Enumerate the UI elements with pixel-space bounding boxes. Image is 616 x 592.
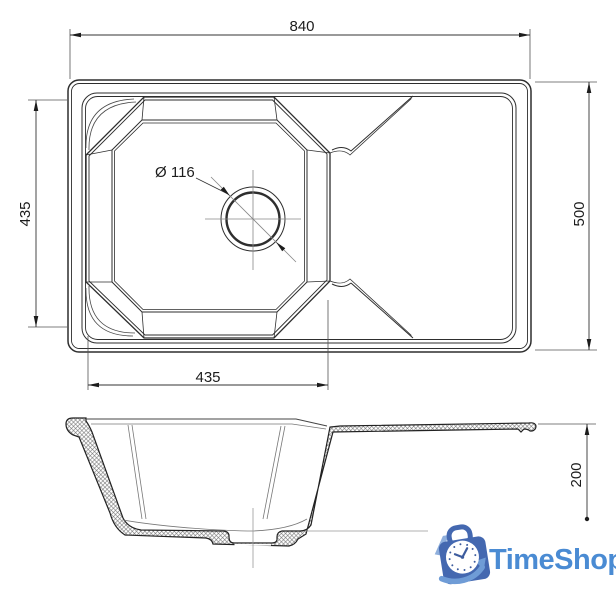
- drainboard-edges: [330, 96, 413, 338]
- technical-drawing-page: 840 435 500 435: [0, 0, 616, 592]
- dim-840-label: 840: [289, 18, 314, 35]
- drain-diameter-label: Ø 116: [155, 164, 195, 181]
- dim-end-dot: [585, 517, 589, 521]
- arrow-right-icon: [519, 33, 530, 38]
- top-view: 840 435 500 435: [17, 18, 597, 390]
- shopping-bag-clock-icon: [431, 524, 491, 586]
- arrow-left-icon: [70, 33, 81, 38]
- logo-text: TimeShop: [489, 544, 616, 576]
- dim-435-left-label: 435: [17, 201, 34, 226]
- dim-200-label: 200: [568, 462, 585, 487]
- arrow-up-icon: [585, 424, 590, 435]
- dim-435-bottom: 435: [88, 300, 328, 390]
- dim-500: 500: [535, 82, 597, 350]
- dim-435-bottom-label: 435: [195, 369, 220, 386]
- sink-rim-outer: [82, 93, 516, 343]
- drain-centerlines: [205, 170, 301, 270]
- arrow-right-icon: [317, 383, 328, 388]
- arrow-down-icon: [34, 316, 39, 327]
- arrow-up-icon: [34, 100, 39, 111]
- dim-840: 840: [70, 18, 530, 79]
- dim-200: 200: [538, 424, 596, 521]
- sink-rim-inner: [86, 97, 513, 340]
- arrow-down-icon: [587, 339, 592, 350]
- arrow-up-icon: [587, 82, 592, 93]
- sink-technical-drawing: 840 435 500 435: [0, 0, 616, 592]
- logo: TimeShop: [431, 524, 616, 586]
- dim-435-left: 435: [17, 100, 67, 327]
- bowl-outline: [86, 97, 330, 338]
- dim-500-label: 500: [571, 201, 588, 226]
- dim-drain-diameter: Ø 116: [155, 164, 285, 251]
- drain: [205, 170, 301, 270]
- arrow-left-icon: [88, 383, 99, 388]
